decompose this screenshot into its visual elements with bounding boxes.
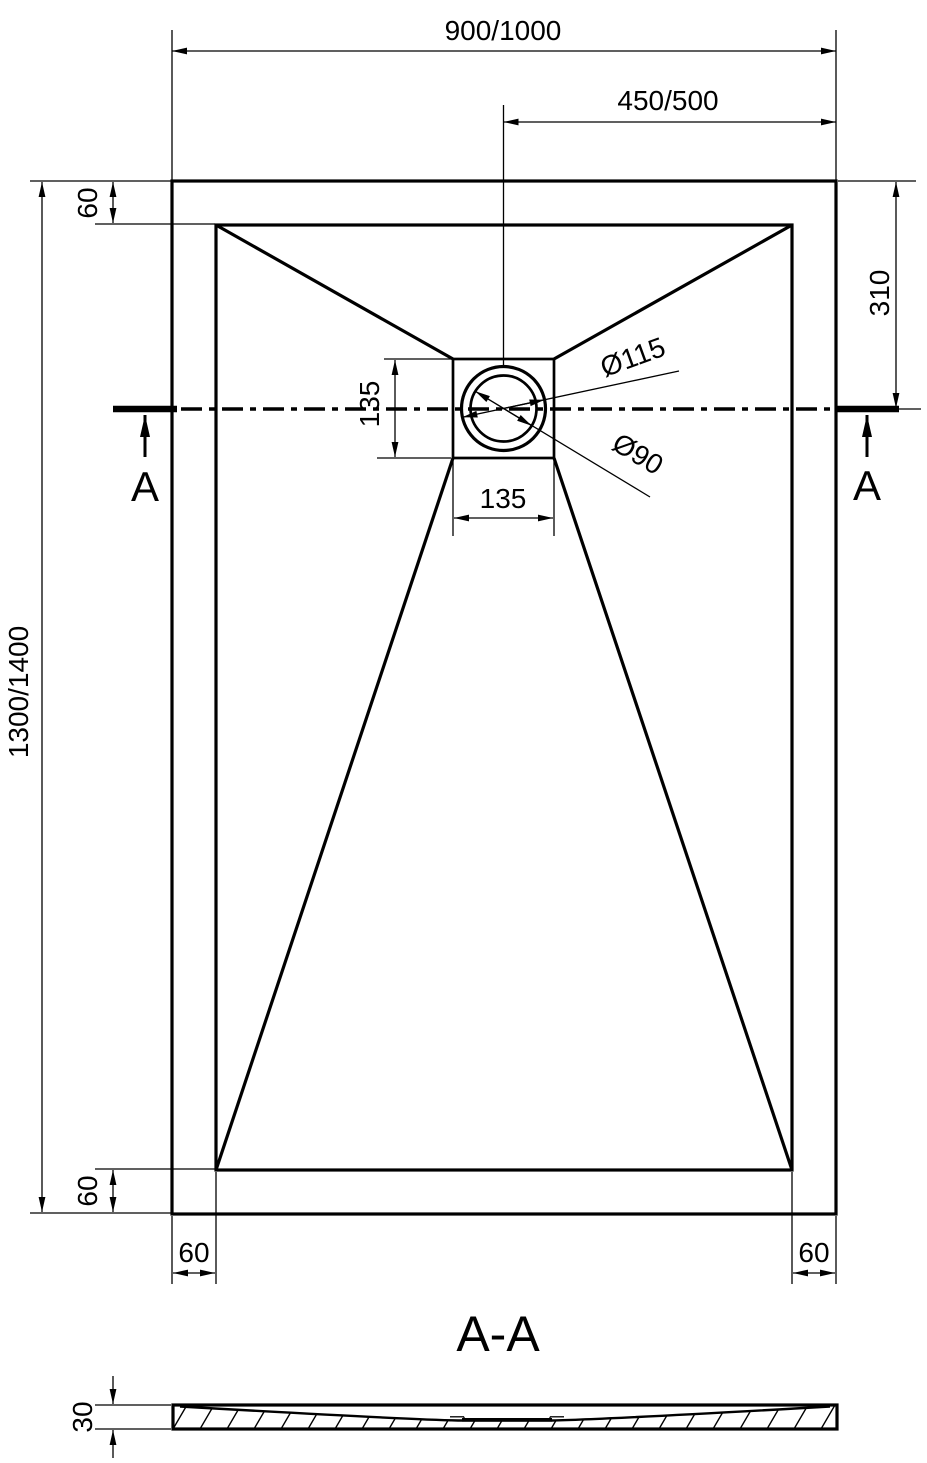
dim-thickness: 30 xyxy=(67,1376,171,1458)
dia-drain-hole-label: Ø90 xyxy=(607,427,668,481)
dim-drain-offset-label: 450/500 xyxy=(617,85,718,116)
slope-diagonal-bottom-left xyxy=(216,458,453,1170)
dim-rim-bottom-label: 60 xyxy=(72,1175,103,1206)
dim-rim-bottom-right: 60 xyxy=(792,1172,836,1284)
top-view: A A 900/1000 450/500 1300/1400 310 xyxy=(3,15,921,1284)
section-material-hatch xyxy=(173,1405,837,1429)
dim-overall-length: 1300/1400 xyxy=(3,181,171,1213)
technical-drawing-page: A A 900/1000 450/500 1300/1400 310 xyxy=(0,0,927,1463)
dim-rim-top-label: 60 xyxy=(72,187,103,218)
section-title: A-A xyxy=(456,1306,540,1362)
dim-drain-square-width: 135 xyxy=(453,461,554,536)
callout-drain-hole-diameter: Ø90 xyxy=(475,391,668,497)
dim-rim-bottom-right-label: 60 xyxy=(798,1237,829,1268)
slope-diagonal-top-left xyxy=(216,225,453,359)
callout-drain-flange-diameter: Ø115 xyxy=(462,331,679,417)
dim-overall-width-label: 900/1000 xyxy=(445,15,562,46)
section-view: A-A 30 xyxy=(67,1306,837,1458)
dim-rim-bottom: 60 xyxy=(72,1169,215,1212)
shower-tray-drawing: A A 900/1000 450/500 1300/1400 310 xyxy=(0,0,927,1463)
leader-arrow xyxy=(504,409,532,426)
slope-diagonal-bottom-right xyxy=(554,458,792,1170)
leader-arrow xyxy=(504,400,545,409)
dim-rim-top: 60 xyxy=(72,182,215,224)
section-profile xyxy=(173,1405,837,1429)
dim-drain-square-height-label: 135 xyxy=(354,381,385,428)
dim-rim-bottom-left-label: 60 xyxy=(178,1237,209,1268)
dim-310-label: 310 xyxy=(864,270,895,317)
slope-diagonal-top-right xyxy=(554,225,792,359)
dim-rim-bottom-left: 60 xyxy=(172,1172,216,1284)
dim-drain-center-from-top: 310 xyxy=(838,181,916,408)
dim-overall-length-label: 1300/1400 xyxy=(3,626,34,758)
dim-thickness-label: 30 xyxy=(67,1401,98,1432)
section-mark-left-label: A xyxy=(131,463,159,510)
section-mark-right-label: A xyxy=(853,462,881,509)
dim-drain-square-width-label: 135 xyxy=(480,483,527,514)
